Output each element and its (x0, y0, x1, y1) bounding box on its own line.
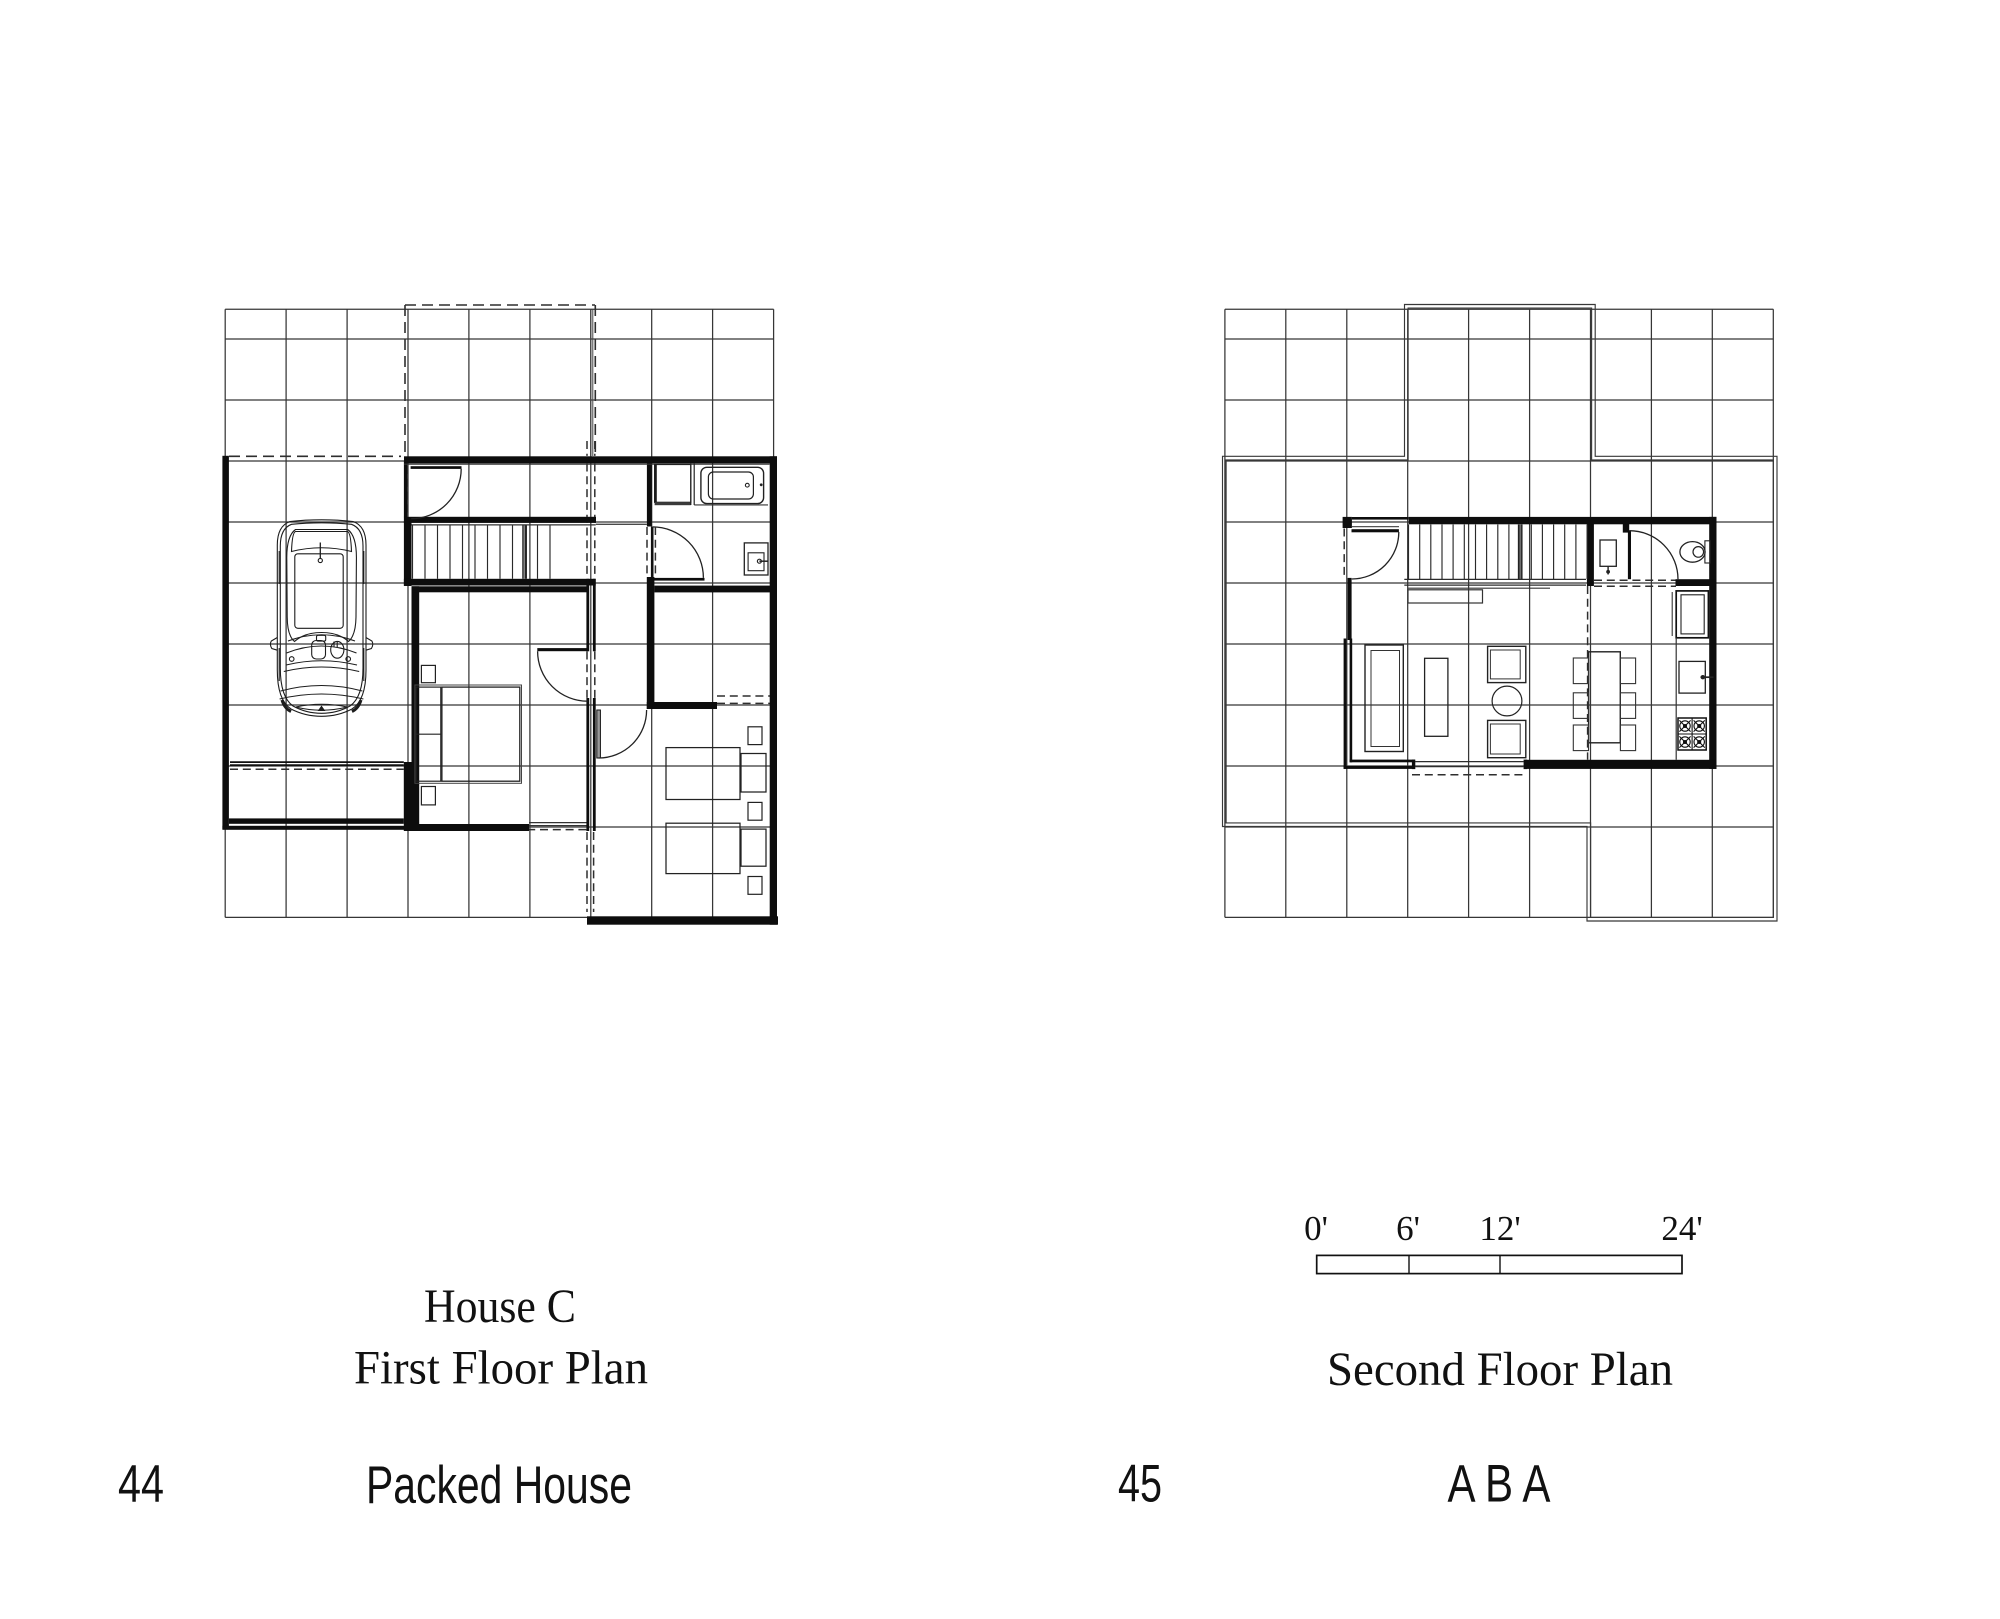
svg-text:A B A: A B A (1448, 1455, 1551, 1514)
svg-text:44: 44 (118, 1455, 164, 1514)
svg-text:Second Floor Plan: Second Floor Plan (1327, 1343, 1673, 1396)
svg-text:Packed House: Packed House (366, 1456, 632, 1515)
svg-text:House C: House C (424, 1280, 576, 1333)
svg-text:24': 24' (1661, 1209, 1702, 1248)
svg-text:0': 0' (1304, 1209, 1328, 1248)
svg-text:12': 12' (1479, 1209, 1520, 1248)
svg-text:6': 6' (1396, 1209, 1420, 1248)
svg-text:45: 45 (1118, 1455, 1162, 1514)
svg-text:First Floor Plan: First Floor Plan (354, 1342, 648, 1395)
